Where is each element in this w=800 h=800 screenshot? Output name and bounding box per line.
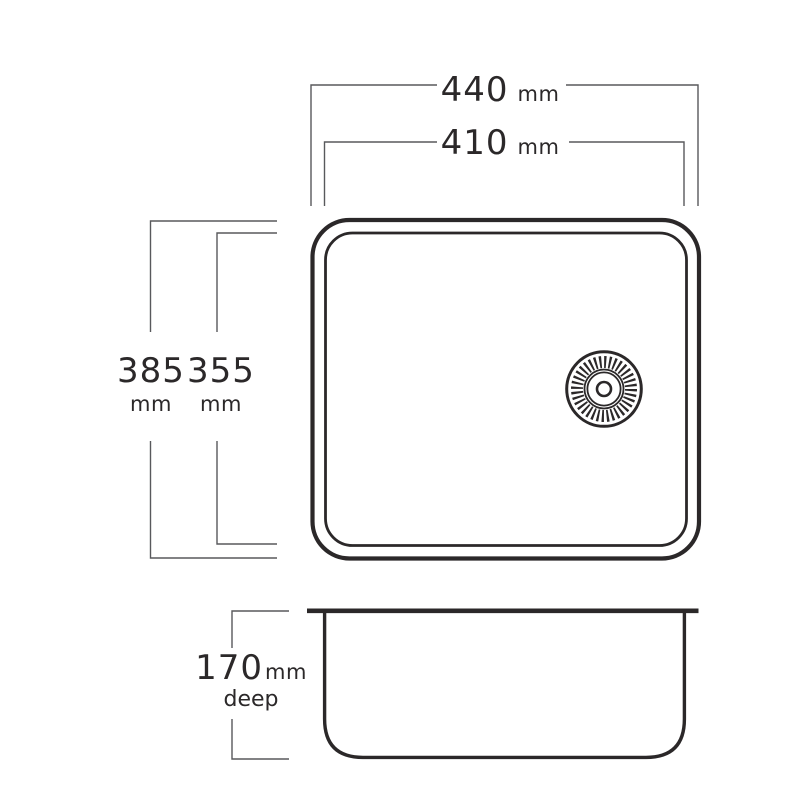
dim-inner-width-unit: mm: [517, 137, 559, 158]
drain-inner-ring-inner: [587, 372, 620, 405]
dim-outer-length-label: 385 mm: [117, 354, 185, 415]
sink-technical-drawing: 440 mm 410 mm 385 mm 355 mm 170 mm deep: [0, 0, 800, 800]
sink-top-view: [313, 220, 700, 559]
dim-outer-length-value: 385: [117, 351, 185, 391]
dim-outer-width-unit: mm: [517, 84, 559, 105]
drain-center-hole: [597, 382, 611, 396]
drain-inner-ring-outer: [585, 370, 624, 409]
dim-outer-width-label: 440 mm: [441, 73, 560, 107]
dim-depth-line: 170 mm: [195, 651, 307, 685]
dim-inner-width-label: 410 mm: [441, 126, 560, 160]
dim-outer-length-unit: mm: [117, 394, 185, 415]
dim-inner-length-value: 355: [187, 351, 255, 391]
dim-depth-value: 170: [195, 651, 263, 685]
drain-icon: [567, 352, 642, 427]
dim-inner-length-label: 355 mm: [187, 354, 255, 415]
dim-inner-width-value: 410: [441, 126, 509, 160]
dim-outer-width-value: 440: [441, 73, 509, 107]
sink-side-view: [307, 611, 699, 758]
sideview-bowl: [325, 612, 685, 758]
dim-inner-length-unit: mm: [187, 394, 255, 415]
dim-depth-word: deep: [195, 689, 307, 711]
dim-depth-label: 170 mm deep: [195, 651, 307, 711]
dim-depth-unit: mm: [265, 662, 307, 683]
